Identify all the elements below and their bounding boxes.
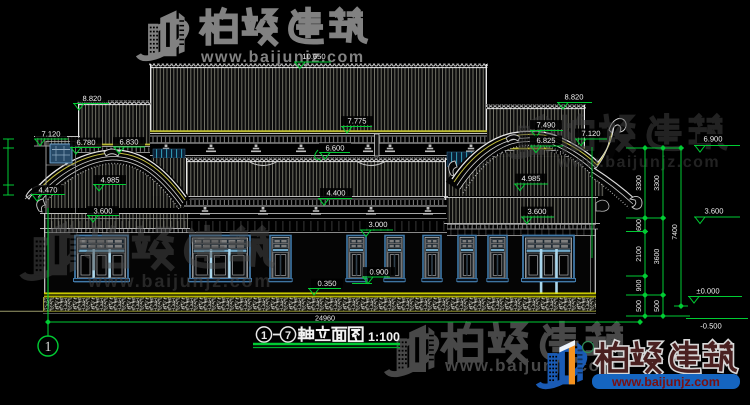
svg-text:1:100: 1:100 <box>368 330 400 344</box>
svg-text:www.baijunjz.com: www.baijunjz.com <box>611 375 720 389</box>
svg-text:4.985: 4.985 <box>100 176 119 185</box>
svg-text:0.350: 0.350 <box>317 279 336 288</box>
svg-text:7.490: 7.490 <box>536 121 555 130</box>
svg-text:6.825: 6.825 <box>536 136 555 145</box>
svg-text:4.470: 4.470 <box>38 186 57 195</box>
svg-text:3300: 3300 <box>654 175 661 191</box>
svg-text:0.900: 0.900 <box>369 268 388 277</box>
svg-text:www.baijunjz.com: www.baijunjz.com <box>87 271 272 291</box>
svg-text:±0.000: ±0.000 <box>696 287 719 296</box>
svg-text:3.600: 3.600 <box>527 207 546 216</box>
svg-text:1: 1 <box>45 340 52 355</box>
svg-text:6.830: 6.830 <box>119 138 138 147</box>
svg-text:www.baijunjz.com: www.baijunjz.com <box>200 49 365 66</box>
svg-text:3.600: 3.600 <box>93 207 112 216</box>
svg-text:500: 500 <box>636 300 643 312</box>
svg-text:24960: 24960 <box>315 314 335 323</box>
svg-text:3600: 3600 <box>654 249 661 265</box>
svg-text:3300: 3300 <box>636 175 643 191</box>
svg-text:4.400: 4.400 <box>326 189 345 198</box>
svg-text:10.650: 10.650 <box>302 52 325 61</box>
svg-text:www.baijunjz.com: www.baijunjz.com <box>557 154 720 171</box>
svg-text:600: 600 <box>636 219 643 231</box>
svg-text:4.985: 4.985 <box>521 174 540 183</box>
svg-text:7400: 7400 <box>672 224 679 240</box>
svg-text:6.780: 6.780 <box>76 138 95 147</box>
svg-text:7.120: 7.120 <box>41 130 60 139</box>
svg-text:www.baijunjz.com: www.baijunjz.com <box>444 356 617 375</box>
svg-text:8.820: 8.820 <box>82 94 101 103</box>
svg-text:7: 7 <box>285 330 291 342</box>
svg-text:3.000: 3.000 <box>368 220 387 229</box>
svg-text:1: 1 <box>261 330 267 342</box>
svg-text:-0.500: -0.500 <box>700 322 722 331</box>
svg-text:8.820: 8.820 <box>564 93 583 102</box>
svg-text:3.600: 3.600 <box>704 207 723 216</box>
svg-text:7.775: 7.775 <box>347 117 366 126</box>
svg-text:6.600: 6.600 <box>325 144 344 153</box>
svg-text:500: 500 <box>654 300 661 312</box>
svg-text:7.120: 7.120 <box>581 129 600 138</box>
svg-text:2100: 2100 <box>636 246 643 262</box>
svg-text:6.900: 6.900 <box>703 135 722 144</box>
svg-text:900: 900 <box>636 280 643 292</box>
